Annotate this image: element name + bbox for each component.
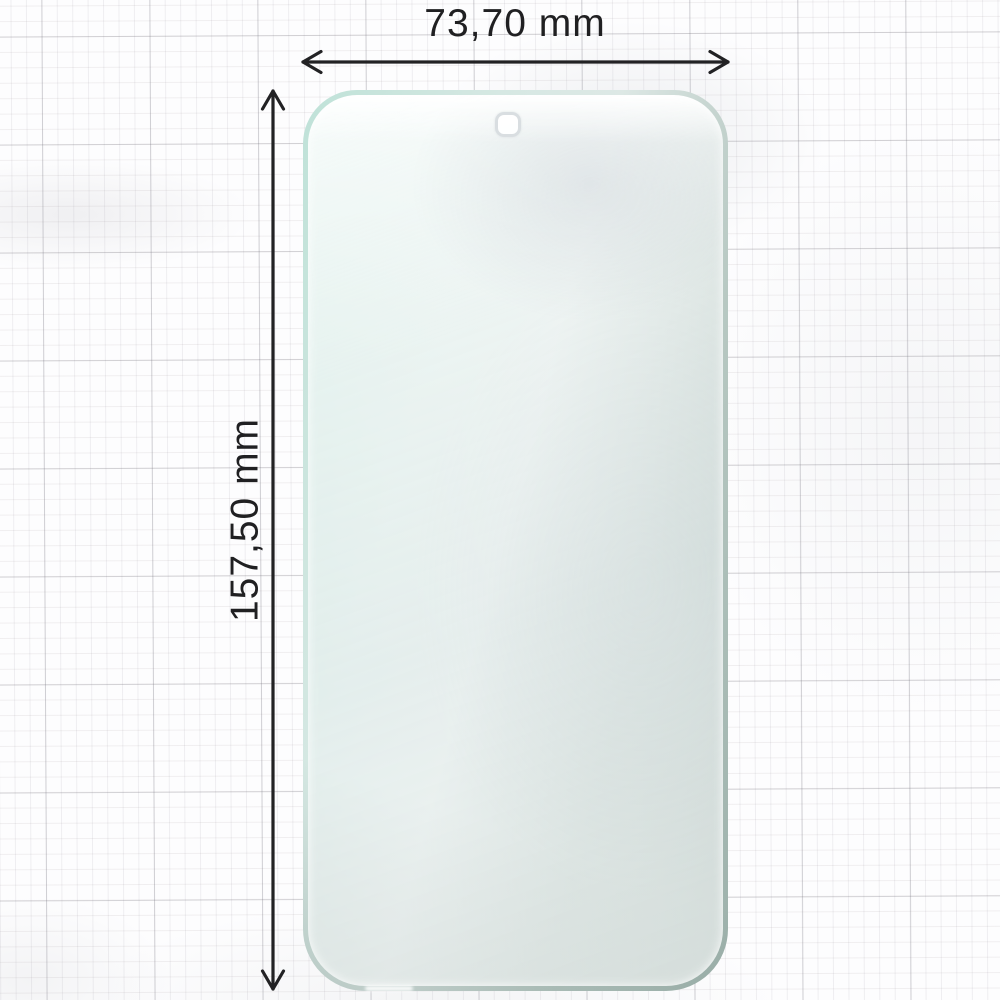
height-dimension-label: 157,50 mm — [225, 418, 268, 622]
screen-protector-outline — [303, 90, 728, 991]
bottom-edge-highlight — [365, 986, 413, 991]
protector-film-surface — [308, 95, 723, 986]
camera-hole-cutout — [495, 112, 521, 137]
width-dimension-label: 73,70 mm — [424, 3, 605, 46]
dimension-diagram: 73,70 mm 157,50 mm — [0, 0, 1000, 1000]
